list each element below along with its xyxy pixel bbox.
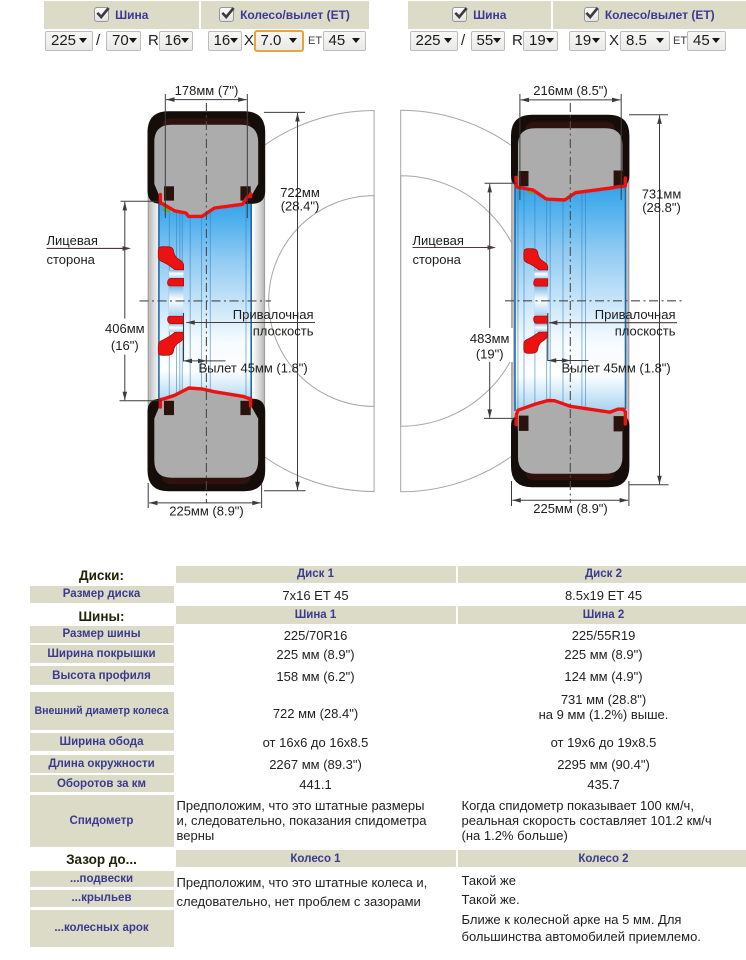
svg-text:сторона: сторона <box>47 252 96 267</box>
svg-text:Привалочная: Привалочная <box>233 307 314 322</box>
svg-text:Привалочная: Привалочная <box>595 307 676 322</box>
svg-text:(19"): (19") <box>476 347 504 362</box>
svg-text:плоскость: плоскость <box>615 324 676 339</box>
svg-text:сторона: сторона <box>413 252 462 267</box>
svg-text:225мм (8.9"): 225мм (8.9") <box>533 501 608 516</box>
svg-text:Лицевая: Лицевая <box>413 233 464 248</box>
svg-text:178мм (7"): 178мм (7") <box>175 83 239 98</box>
svg-text:(28.8"): (28.8") <box>642 200 681 215</box>
svg-text:плоскость: плоскость <box>253 324 314 339</box>
svg-text:Лицевая: Лицевая <box>47 233 98 248</box>
svg-text:Вылет 45мм (1.8"): Вылет 45мм (1.8") <box>562 361 671 376</box>
svg-text:(28.4"): (28.4") <box>281 199 320 214</box>
svg-text:483мм: 483мм <box>470 331 510 346</box>
svg-text:225мм (8.9"): 225мм (8.9") <box>169 504 244 519</box>
svg-text:406мм: 406мм <box>105 321 145 336</box>
svg-text:Вылет 45мм (1.8"): Вылет 45мм (1.8") <box>199 361 308 376</box>
svg-text:216мм (8.5"): 216мм (8.5") <box>533 83 608 98</box>
svg-text:(16"): (16") <box>111 338 139 353</box>
